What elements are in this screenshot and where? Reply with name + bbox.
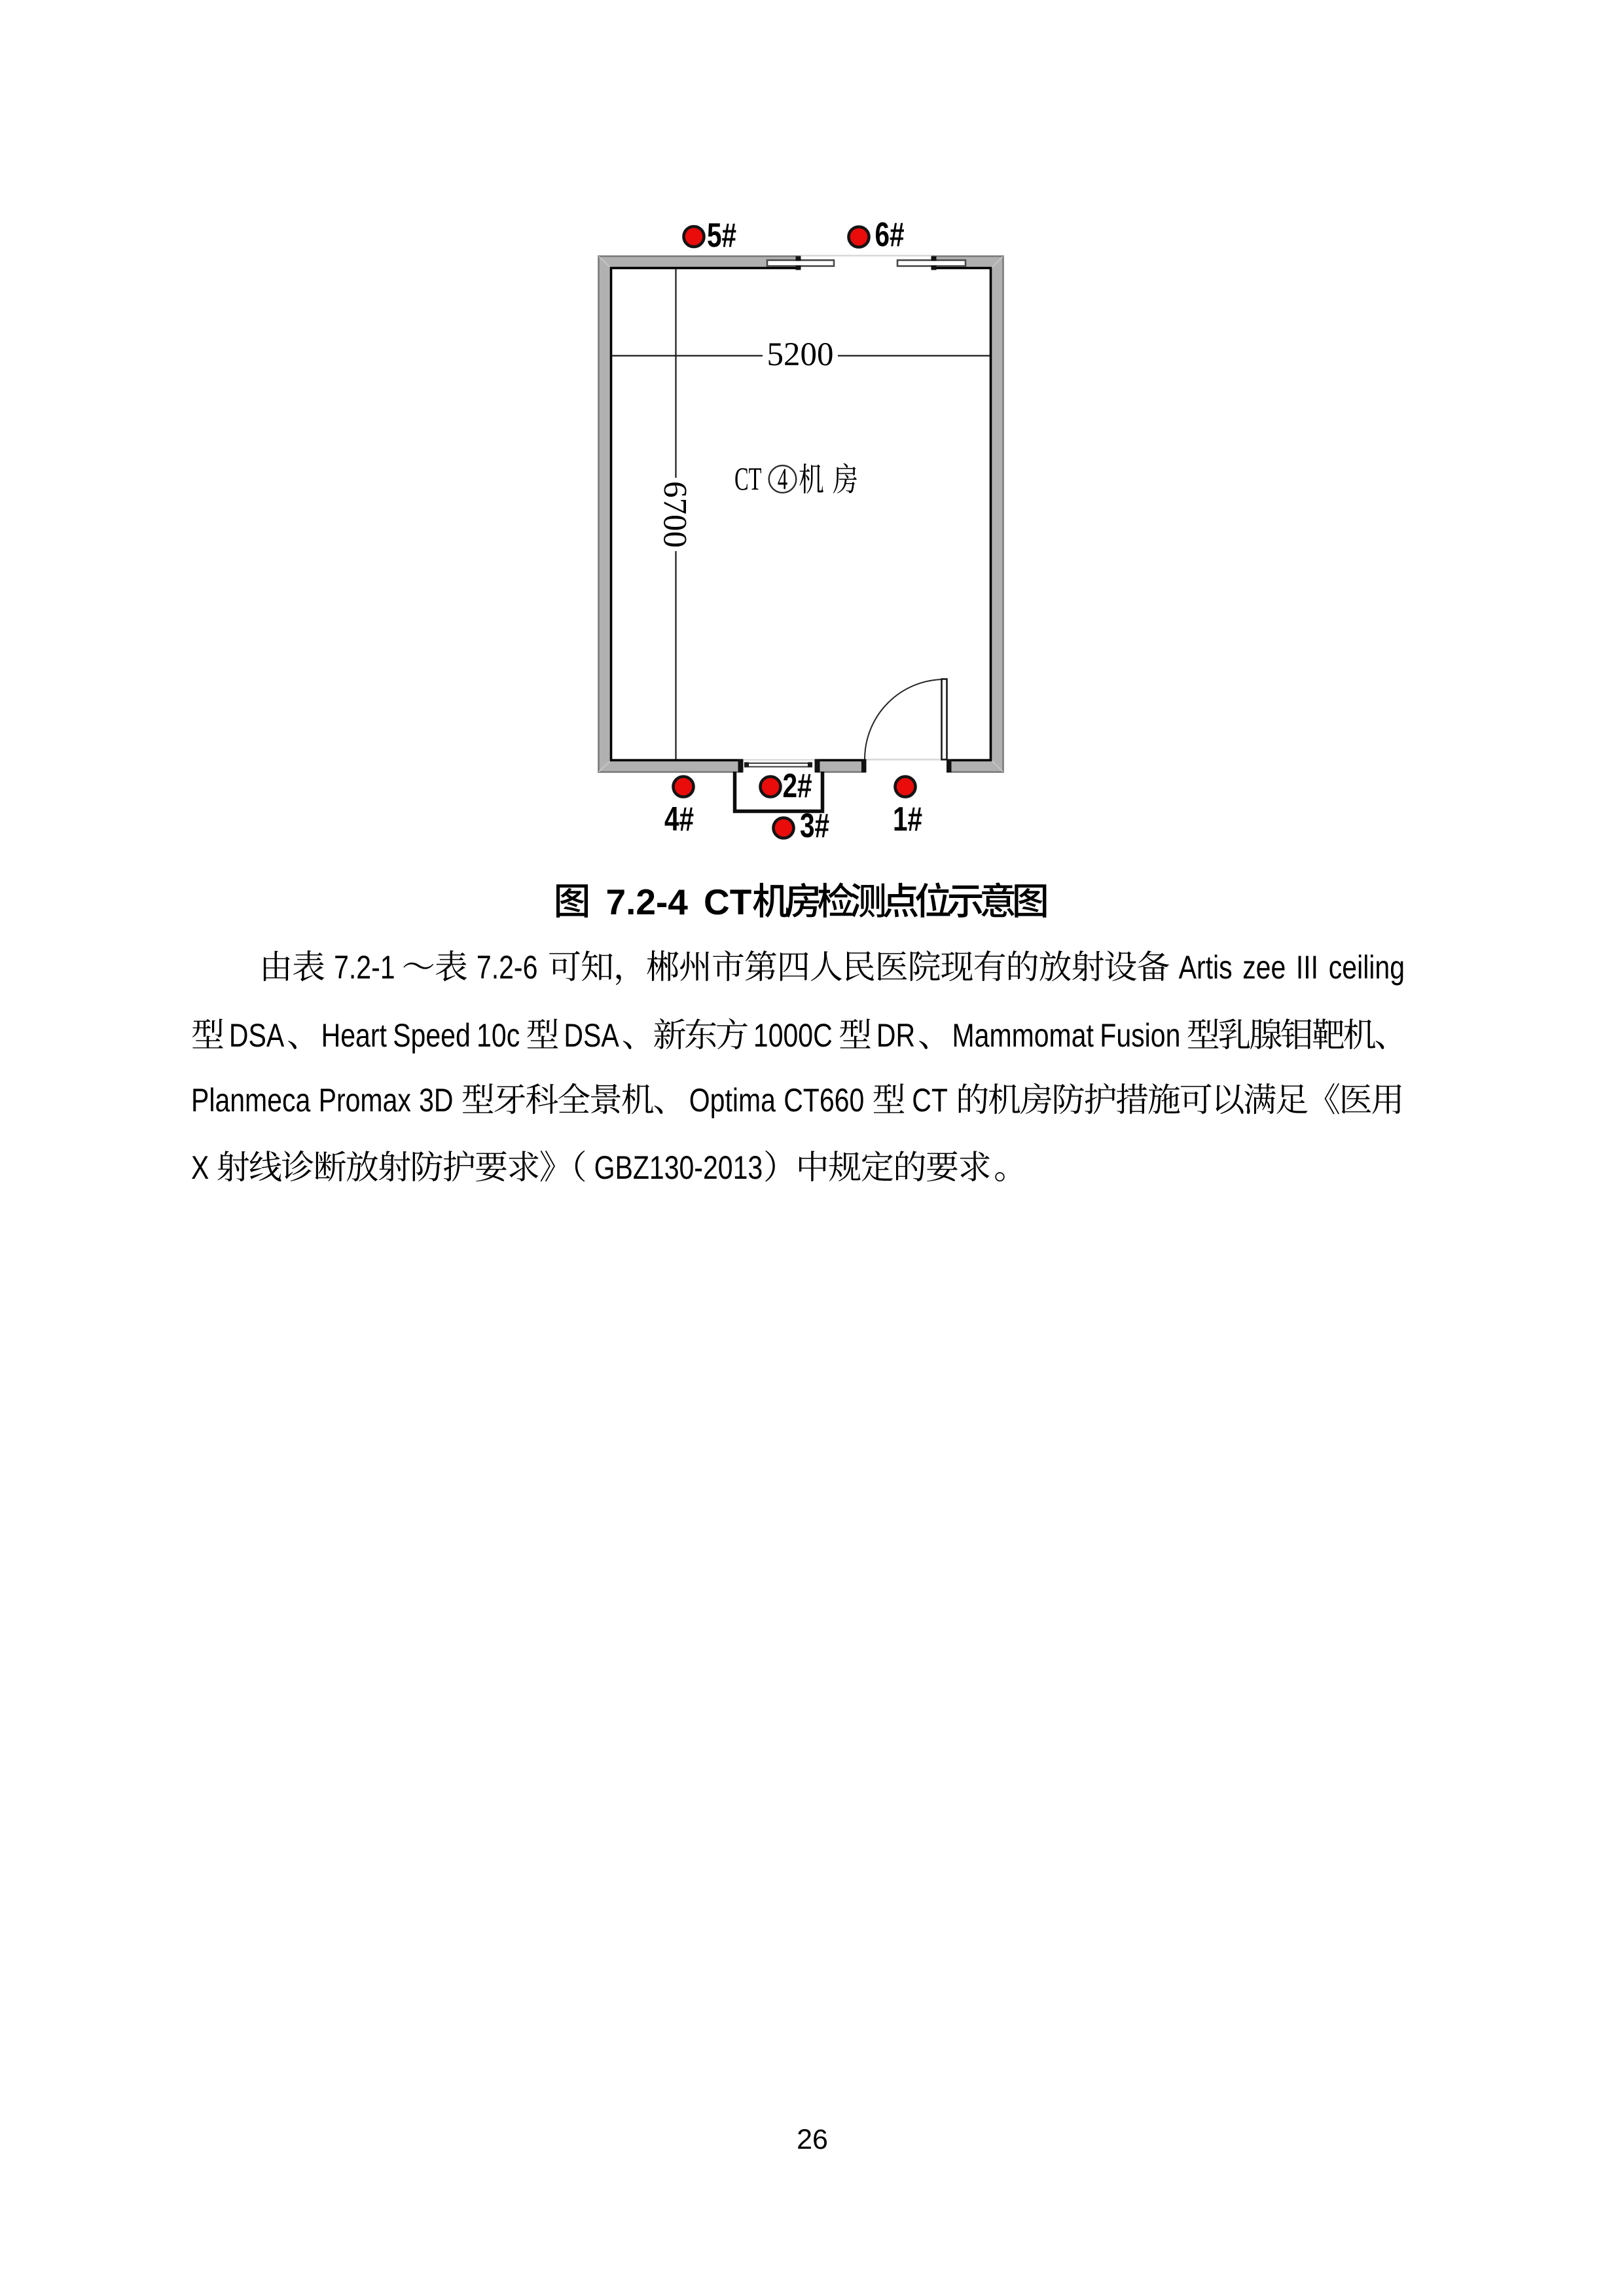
svg-text:5200: 5200	[767, 336, 834, 373]
svg-text:26: 26	[797, 2124, 828, 2155]
svg-text:GBZ130-2013: GBZ130-2013	[594, 1149, 763, 1186]
svg-text:ceiling: ceiling	[1329, 949, 1405, 986]
svg-text:10c: 10c	[477, 1017, 520, 1054]
svg-text:7.2-4: 7.2-4	[606, 882, 689, 922]
svg-text:4#: 4#	[664, 800, 694, 838]
svg-text:1000C: 1000C	[753, 1017, 833, 1054]
svg-text:5#: 5#	[707, 216, 736, 254]
svg-text:3D: 3D	[419, 1082, 453, 1119]
svg-text:DR: DR	[876, 1017, 915, 1054]
svg-text:Optima: Optima	[689, 1082, 776, 1119]
svg-text:4: 4	[778, 461, 787, 495]
svg-text:Mammomat: Mammomat	[952, 1017, 1094, 1054]
svg-text:CT: CT	[734, 461, 762, 497]
svg-text:Heart: Heart	[321, 1017, 387, 1054]
svg-text:CT: CT	[704, 882, 751, 922]
svg-text:7.2-1: 7.2-1	[334, 949, 395, 986]
svg-text:2#: 2#	[783, 766, 812, 804]
svg-text:Fusion: Fusion	[1100, 1017, 1180, 1054]
svg-text:DSA: DSA	[564, 1017, 619, 1054]
svg-text:DSA: DSA	[229, 1017, 285, 1054]
svg-text:III: III	[1296, 949, 1318, 986]
svg-text:CT660: CT660	[784, 1082, 864, 1119]
svg-text:X: X	[191, 1149, 209, 1186]
svg-text:Planmeca: Planmeca	[191, 1082, 310, 1119]
svg-text:Artis: Artis	[1179, 949, 1233, 986]
svg-text:3#: 3#	[800, 806, 829, 844]
svg-text:zee: zee	[1242, 949, 1286, 986]
svg-text:Promax: Promax	[319, 1082, 411, 1119]
svg-text:1#: 1#	[893, 800, 922, 838]
svg-text:6700: 6700	[657, 481, 693, 548]
svg-text:6#: 6#	[875, 215, 905, 253]
svg-text:CT: CT	[912, 1082, 948, 1119]
svg-text:Speed: Speed	[393, 1017, 471, 1054]
svg-text:7.2-6: 7.2-6	[477, 949, 538, 986]
